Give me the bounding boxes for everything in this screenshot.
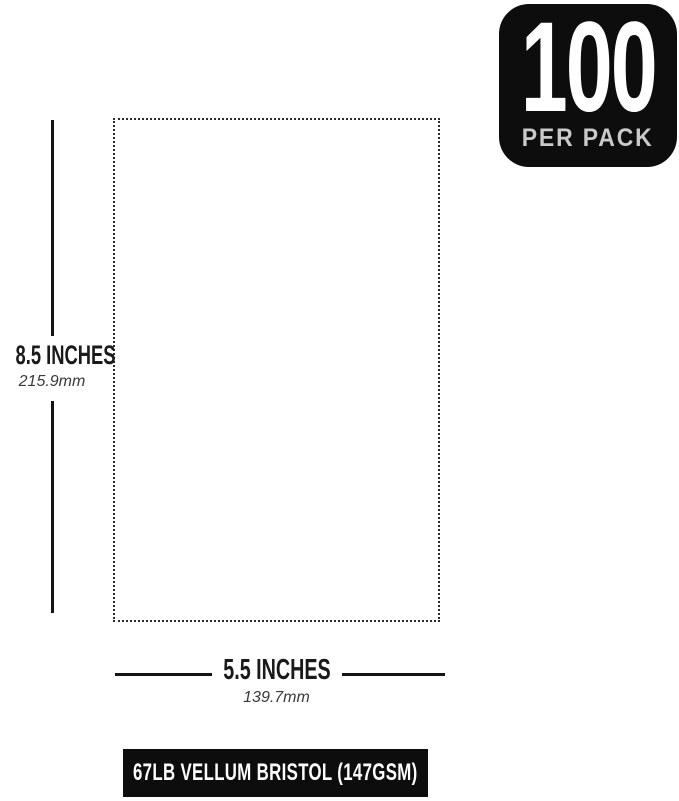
width-dimension-label: 5.5 INCHES 139.7mm [113, 655, 440, 707]
pack-count-badge: 100 PER PACK [499, 4, 677, 167]
width-inches-text: 5.5 INCHES [223, 655, 330, 687]
height-inches-text: 8.5 INCHES [16, 341, 116, 371]
pack-count-value: 100 [520, 18, 655, 118]
paper-spec-text: 67LB VELLUM BRISTOL (147GSM) [133, 759, 418, 787]
paper-sheet-outline [113, 118, 440, 622]
height-dimension-label: 8.5 INCHES 215.9mm [0, 341, 112, 391]
height-dimension-line-upper [51, 120, 54, 336]
height-dimension-line-lower [51, 401, 54, 613]
width-mm-text: 139.7mm [113, 689, 440, 707]
footer-paper-spec-bar: 67LB VELLUM BRISTOL (147GSM) [123, 749, 428, 797]
pack-count-label: PER PACK [522, 124, 654, 153]
height-mm-text: 215.9mm [0, 373, 112, 391]
